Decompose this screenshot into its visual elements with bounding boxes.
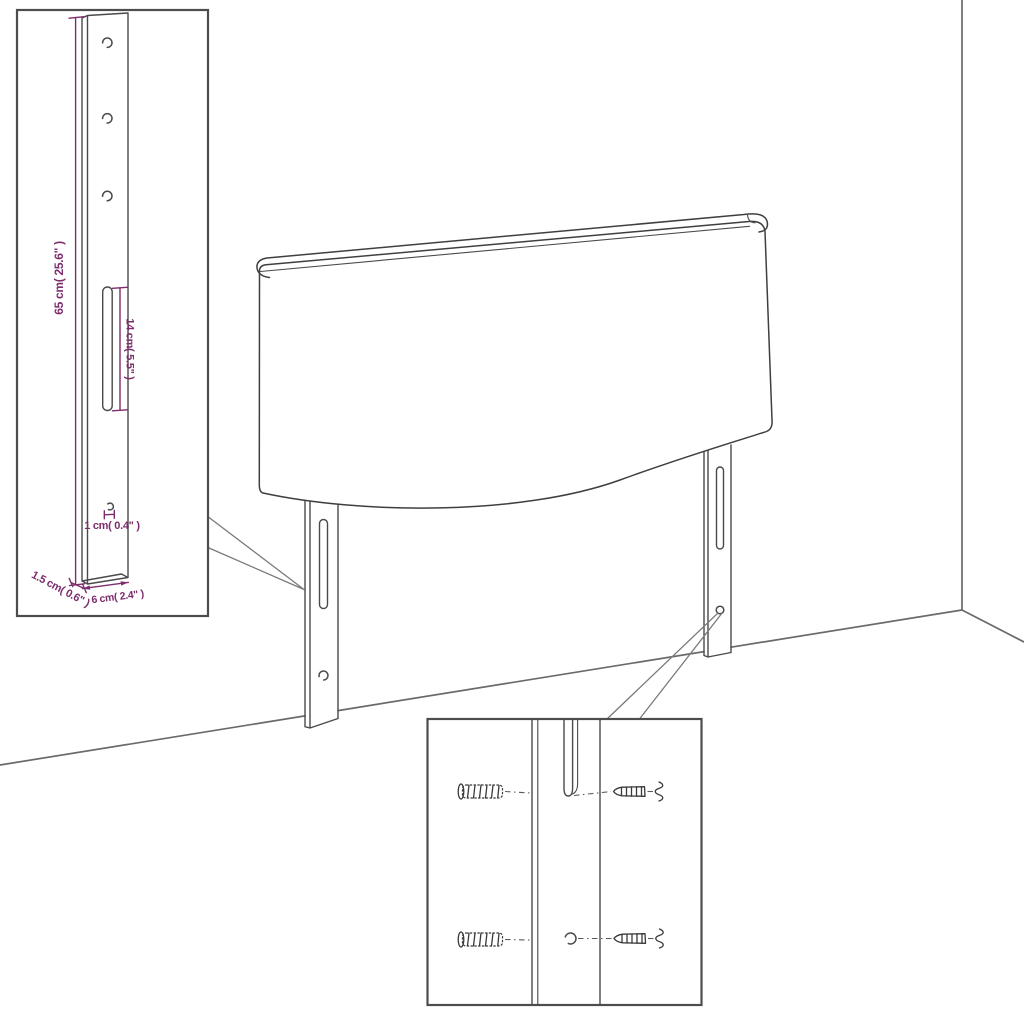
hardware-detail-inset [428, 719, 702, 1005]
leg-inset-leader-lines [209, 518, 304, 590]
headboard-left-leg [305, 498, 338, 729]
leg-dimension-inset: 65 cm( 25.6" ) 14 cm( 5.5" ) 1 cm( 0.4" … [17, 10, 208, 616]
left-leg-outline [305, 498, 338, 729]
dimension-slot-label: 14 cm( 5.5" ) [124, 318, 136, 380]
floor-line-right [962, 610, 1024, 642]
left-leg-hole [319, 671, 328, 680]
headboard-assembly-diagram: 65 cm( 25.6" ) 14 cm( 5.5" ) 1 cm( 0.4" … [0, 0, 1024, 1024]
headboard-right-leg [704, 445, 731, 657]
leg-detail-small-hole [107, 503, 114, 510]
right-leg-outline [704, 445, 731, 657]
right-leg-hole [716, 606, 724, 614]
callout-leader-lines [209, 518, 722, 720]
leg-hole-bottom [103, 191, 112, 200]
headboard-drawing [257, 214, 772, 728]
leg-strip-hole [565, 933, 576, 944]
dimension-height-label: 65 cm( 25.6" ) [52, 241, 66, 315]
leg-hole-middle [103, 114, 112, 123]
right-leg-slot [717, 467, 724, 549]
left-leg-slot [320, 520, 328, 609]
dimension-hole-label: 1 cm( 0.4" ) [84, 520, 140, 532]
diagram-canvas: 65 cm( 25.6" ) 14 cm( 5.5" ) 1 cm( 0.4" … [0, 0, 1024, 1024]
leg-hole-top [103, 38, 112, 47]
